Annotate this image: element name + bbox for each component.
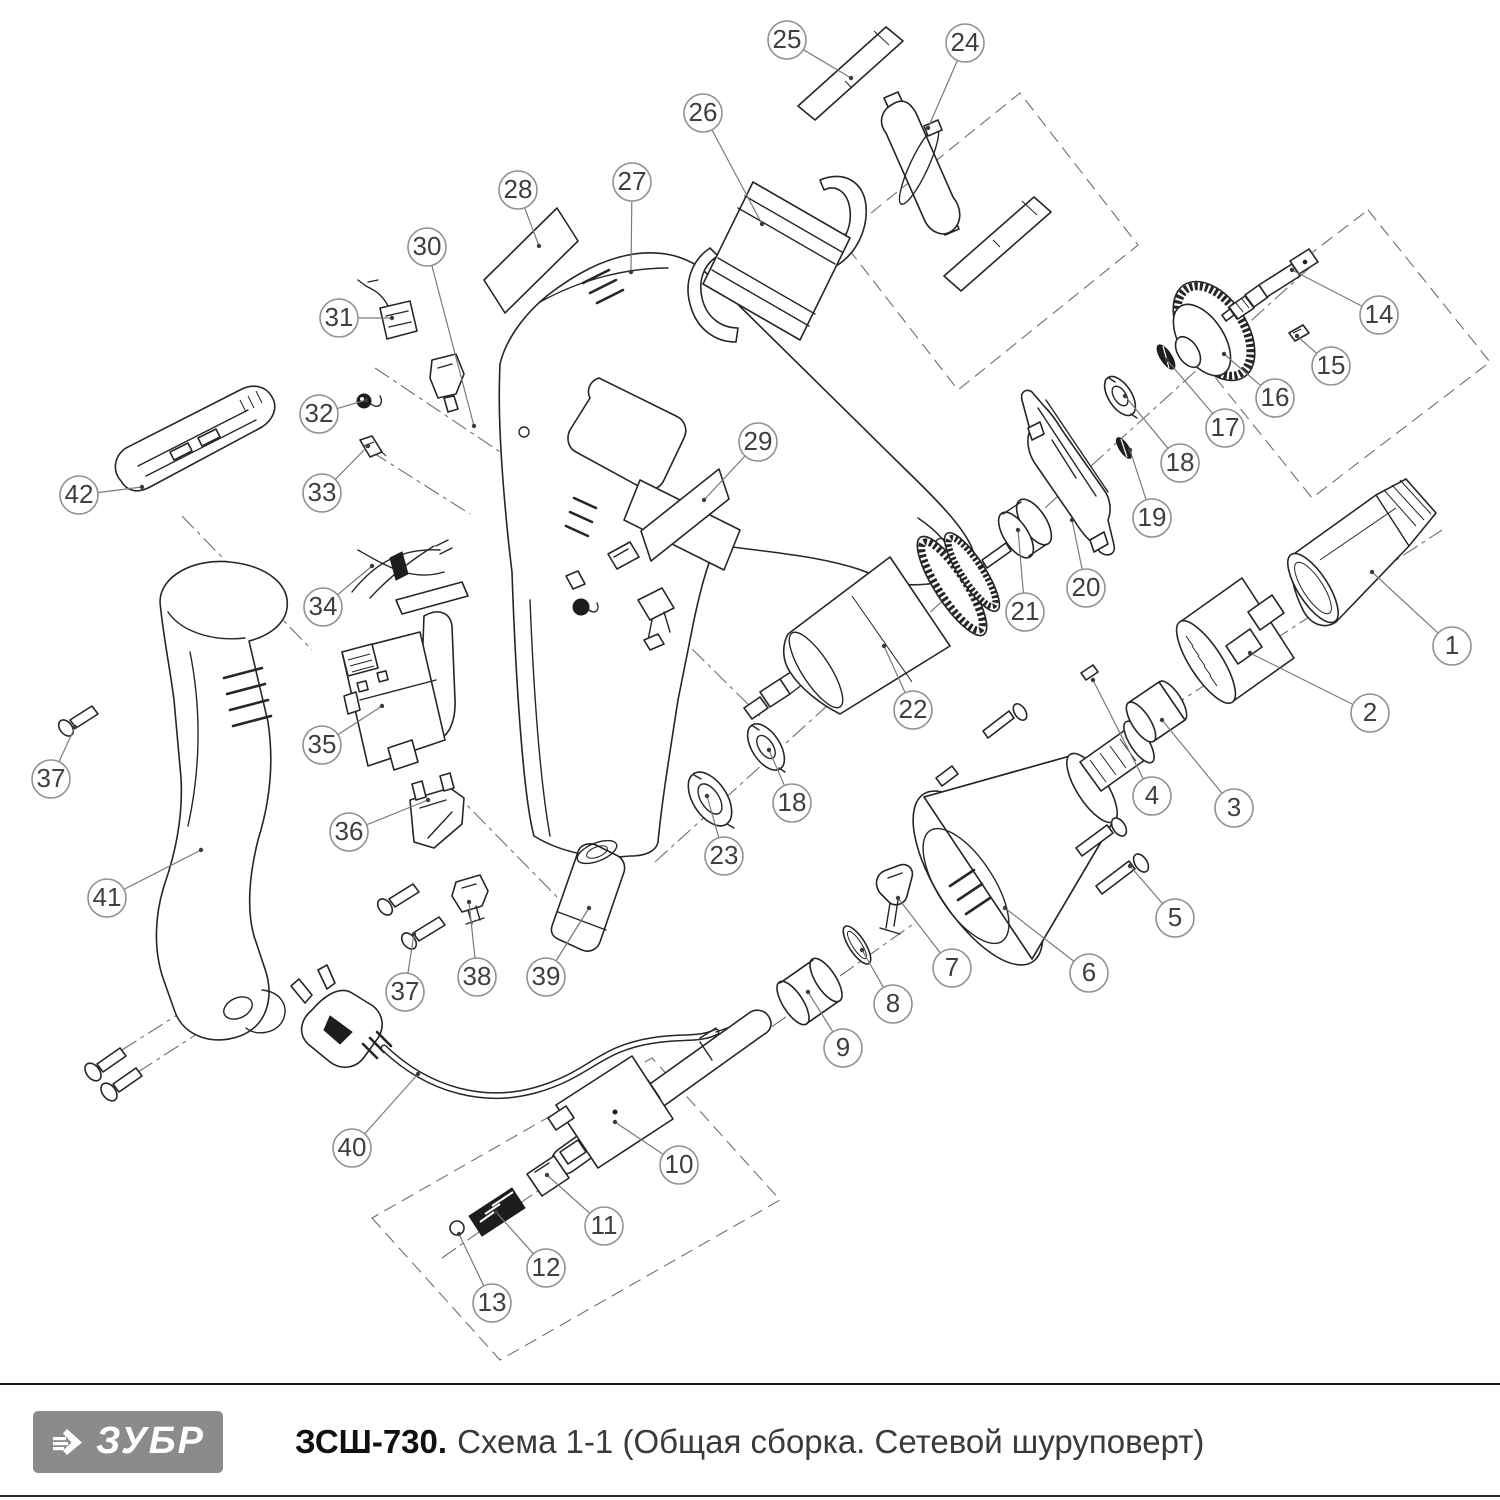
leader-dot — [390, 316, 394, 320]
leader-line — [1130, 450, 1146, 500]
leader-line — [365, 1074, 418, 1134]
balloon-number: 20 — [1072, 572, 1101, 602]
leader-dot — [760, 222, 764, 226]
part-key-15 — [1289, 325, 1309, 341]
part-pin-4 — [1081, 665, 1098, 680]
callout-30: 30 — [408, 228, 476, 428]
balloon-number: 39 — [532, 961, 561, 991]
balloon-number: 4 — [1145, 780, 1159, 810]
leader-line — [712, 130, 762, 224]
callout-28: 28 — [499, 171, 541, 248]
balloon-number: 9 — [836, 1032, 850, 1062]
part-nose-cap-1 — [1279, 479, 1436, 630]
callout-5: 5 — [1128, 864, 1194, 937]
leader-dot — [767, 748, 771, 752]
callout-15: 15 — [1295, 334, 1350, 385]
leader-line — [338, 566, 372, 595]
drawing-caption: ЗСШ-730.Схема 1-1 (Общая сборка. Сетевой… — [295, 1423, 1204, 1461]
balloon-number: 7 — [945, 952, 959, 982]
callout-25: 25 — [768, 21, 853, 80]
leader-line — [928, 60, 957, 128]
leader-line — [335, 446, 368, 479]
balloon-number: 8 — [886, 988, 900, 1018]
balloon-number: 32 — [305, 398, 334, 428]
balloon-number: 18 — [1166, 447, 1195, 477]
part-top-cover-42 — [115, 386, 274, 491]
leader-dot — [1128, 448, 1132, 452]
balloon-number: 11 — [591, 1210, 618, 1240]
part-bearing-18-rear — [740, 718, 792, 777]
schematic-page: 1234567891011121314151617181920212223182… — [0, 0, 1500, 1500]
leader-dot — [705, 794, 709, 798]
balloon-number: 33 — [308, 477, 337, 507]
part-gear-16 — [1156, 267, 1271, 395]
callout-34: 34 — [304, 564, 374, 626]
leader-line — [631, 201, 632, 272]
part-clip-7 — [877, 865, 913, 934]
leader-dot — [1091, 678, 1095, 682]
part-handle-screws — [82, 1048, 142, 1104]
part-output-shaft-14 — [1222, 249, 1318, 321]
leader-line — [547, 1175, 590, 1213]
balloon-number: 36 — [335, 816, 364, 846]
leader-line — [1125, 396, 1168, 448]
part-screws-37-bottom — [375, 884, 445, 952]
leader-dot — [613, 1120, 617, 1124]
callout-31: 31 — [320, 299, 394, 337]
leader-dot — [370, 564, 374, 568]
part-gearbox-housing-6 — [888, 717, 1159, 985]
callout-12: 12 — [494, 1210, 565, 1287]
leader-line — [469, 902, 475, 958]
leader-line — [1372, 572, 1438, 633]
part-ball-13 — [450, 1221, 464, 1235]
leader-dot — [73, 725, 77, 729]
balloon-number: 16 — [1261, 382, 1290, 412]
leader-line — [1162, 720, 1222, 793]
part-motor-housing-27 — [499, 253, 974, 857]
balloon-number: 38 — [463, 961, 492, 991]
balloon-number: 30 — [413, 231, 442, 261]
part-bearing-18-front — [1098, 371, 1141, 420]
leader-dot — [412, 932, 416, 936]
leader-dot — [416, 1072, 420, 1076]
brand-logo: ЗУБР — [33, 1411, 223, 1473]
leader-line — [1297, 336, 1317, 353]
part-bracket-36 — [410, 773, 464, 848]
leader-dot — [882, 644, 886, 648]
leader-dot — [860, 948, 864, 952]
balloon-number: 35 — [308, 729, 337, 759]
leader-dot — [1290, 268, 1294, 272]
leader-dot — [457, 1232, 461, 1236]
part-washer-17 — [1154, 342, 1178, 371]
diagram-area: 1234567891011121314151617181920212223182… — [0, 0, 1500, 1383]
part-bearing-23 — [679, 765, 740, 834]
leader-dot — [494, 1210, 498, 1214]
balloon-number: 3 — [1227, 792, 1241, 822]
leader-dot — [1003, 906, 1007, 910]
balloon-number: 5 — [1168, 902, 1182, 932]
balloon-number: 22 — [899, 694, 928, 724]
balloon-number: 41 — [93, 882, 122, 912]
bottom-border — [0, 1495, 1500, 1497]
leader-dot — [537, 244, 541, 248]
exploded-diagram: 1234567891011121314151617181920212223182… — [0, 0, 1500, 1383]
leader-dot — [629, 270, 633, 274]
leader-dot — [1165, 358, 1169, 362]
part-trigger-switch-35 — [342, 582, 468, 770]
balloon-number: 6 — [1082, 957, 1096, 987]
leader-dot — [545, 1173, 549, 1177]
balloon-number: 17 — [1211, 412, 1240, 442]
part-brush-plate-24 — [882, 92, 960, 235]
leader-dot — [472, 424, 476, 428]
balloon-number: 26 — [689, 97, 718, 127]
leader-dot — [1128, 864, 1132, 868]
part-clutch-ring-2 — [1166, 578, 1294, 711]
leader-dot — [926, 126, 930, 130]
leader-dot — [1160, 718, 1164, 722]
leader-dot — [380, 704, 384, 708]
leader-dot — [1248, 651, 1252, 655]
zubr-arrow-icon — [51, 1424, 87, 1460]
brand-text: ЗУБР — [96, 1420, 205, 1463]
callout-40: 40 — [333, 1072, 420, 1167]
callout-14: 14 — [1290, 268, 1398, 334]
balloon-number: 34 — [309, 591, 338, 621]
balloon-number: 2 — [1363, 697, 1377, 727]
leader-dot — [1070, 518, 1074, 522]
leader-dot — [896, 896, 900, 900]
balloon-number: 42 — [65, 479, 94, 509]
balloon-number: 37 — [37, 763, 66, 793]
leader-dot — [1295, 334, 1299, 338]
callout-24: 24 — [926, 24, 984, 130]
leader-dot — [587, 906, 591, 910]
leader-dot — [199, 848, 203, 852]
title-bar: ЗУБР ЗСШ-730.Схема 1-1 (Общая сборка. Се… — [0, 1383, 1500, 1498]
callout-33: 33 — [303, 444, 370, 512]
leader-dot — [366, 444, 370, 448]
leader-dot — [467, 900, 471, 904]
part-spindle-10 — [548, 1010, 771, 1174]
callout-38: 38 — [458, 900, 496, 996]
leader-dot — [426, 798, 430, 802]
balloon-number: 29 — [744, 426, 773, 456]
balloon-number: 37 — [391, 976, 420, 1006]
callout-37: 37 — [32, 725, 77, 798]
leader-dot — [1370, 570, 1374, 574]
scheme-title: Схема 1-1 (Общая сборка. Сетевой шурупов… — [457, 1423, 1204, 1460]
callout-3: 3 — [1160, 718, 1253, 827]
leader-dot — [702, 498, 706, 502]
balloon-number: 25 — [773, 24, 802, 54]
callout-18: 18 — [767, 748, 811, 822]
part-lock-button-30 — [430, 354, 464, 412]
leader-dot — [364, 398, 368, 402]
balloon-number: 28 — [504, 174, 533, 204]
balloon-number: 24 — [951, 27, 980, 57]
balloon-number: 1 — [1445, 630, 1459, 660]
balloon-number: 31 — [325, 302, 354, 332]
part-washer-19 — [1114, 435, 1135, 460]
callout-26: 26 — [684, 94, 764, 226]
balloon-number: 27 — [618, 166, 647, 196]
leader-dot — [1123, 394, 1127, 398]
balloon-number: 12 — [532, 1252, 561, 1282]
callout-18: 18 — [1123, 394, 1199, 482]
balloon-number: 23 — [710, 840, 739, 870]
balloon-number: 21 — [1011, 596, 1040, 626]
part-screw-37-left — [56, 706, 98, 739]
leader-dot — [806, 990, 810, 994]
model-number: ЗСШ-730. — [295, 1423, 447, 1460]
callout-13: 13 — [457, 1232, 511, 1322]
balloon-number: 15 — [1317, 350, 1346, 380]
leader-line — [898, 898, 940, 953]
part-screw-33 — [360, 436, 386, 457]
balloon-number: 10 — [665, 1149, 694, 1179]
callout-1: 1 — [1370, 570, 1471, 665]
callout-2: 2 — [1248, 651, 1389, 732]
part-switch-block-31 — [358, 280, 417, 339]
leader-dot — [1222, 352, 1226, 356]
callout-16: 16 — [1222, 352, 1294, 417]
balloon-number: 19 — [1138, 502, 1167, 532]
part-handle-half-41 — [156, 561, 287, 1039]
callout-11: 11 — [545, 1173, 623, 1245]
leader-dot — [849, 76, 853, 80]
balloon-number: 40 — [338, 1132, 367, 1162]
part-ring-8 — [838, 922, 875, 968]
leader-line — [496, 1212, 533, 1254]
leader-dot — [1016, 528, 1020, 532]
leader-dot — [140, 485, 144, 489]
balloon-number: 13 — [478, 1287, 507, 1317]
leader-line — [862, 950, 884, 988]
leader-line — [459, 1234, 484, 1286]
part-sleeve-39 — [551, 836, 624, 951]
balloon-number: 14 — [1365, 299, 1394, 329]
callout-8: 8 — [860, 948, 912, 1023]
balloon-number: 18 — [778, 787, 807, 817]
leader-line — [1292, 270, 1362, 306]
